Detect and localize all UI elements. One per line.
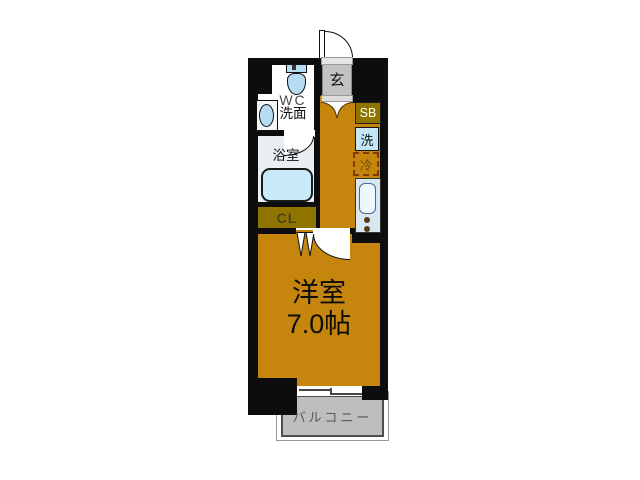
shoebox-box: SB <box>355 102 381 124</box>
wc-label: WC 洗面 <box>268 92 318 122</box>
bathroom-label: 浴室 <box>258 145 314 163</box>
sliding-window-pane-left <box>299 389 332 391</box>
wall-wc-corner-notch <box>248 58 272 94</box>
shoebox-label: SB <box>360 106 377 120</box>
washer-box: 洗 <box>355 127 379 151</box>
stove-burner-icon-2 <box>364 226 370 232</box>
front-door-swing-icon <box>325 31 353 58</box>
wc-label-line2: 洗面 <box>280 107 307 121</box>
main-room-size: 7.0帖 <box>287 309 352 340</box>
front-door-leaf <box>319 30 325 59</box>
washer-label: 洗 <box>360 130 373 149</box>
entrance-threshold-inner <box>321 95 353 102</box>
wc-label-line1: WC <box>279 93 306 108</box>
stove-burner-icon-1 <box>364 217 370 223</box>
toilet-tank-icon <box>286 64 307 73</box>
closet-box: CL <box>258 207 316 228</box>
floorplan-canvas: CL SB 洗 冷 玄 WC 洗面 浴室 洋室 7.0帖 バルコニー <box>0 0 640 480</box>
wall-closet-room <box>248 228 296 234</box>
entrance-label: 玄 <box>322 63 352 96</box>
toilet-flush-knob <box>292 65 296 70</box>
bathtub-icon <box>261 168 313 202</box>
fridge-box: 冷 <box>353 152 379 176</box>
sliding-window-tick <box>330 388 332 395</box>
main-room-name: 洋室 <box>292 278 346 309</box>
main-room-label: 洋室 7.0帖 <box>258 274 380 344</box>
wall-right <box>380 58 388 400</box>
fridge-label: 冷 <box>360 155 373 174</box>
balcony-label: バルコニー <box>281 395 384 437</box>
kitchen-sink-icon <box>359 183 376 214</box>
wall-counter-bottom <box>352 232 388 243</box>
closet-label: CL <box>277 210 298 226</box>
